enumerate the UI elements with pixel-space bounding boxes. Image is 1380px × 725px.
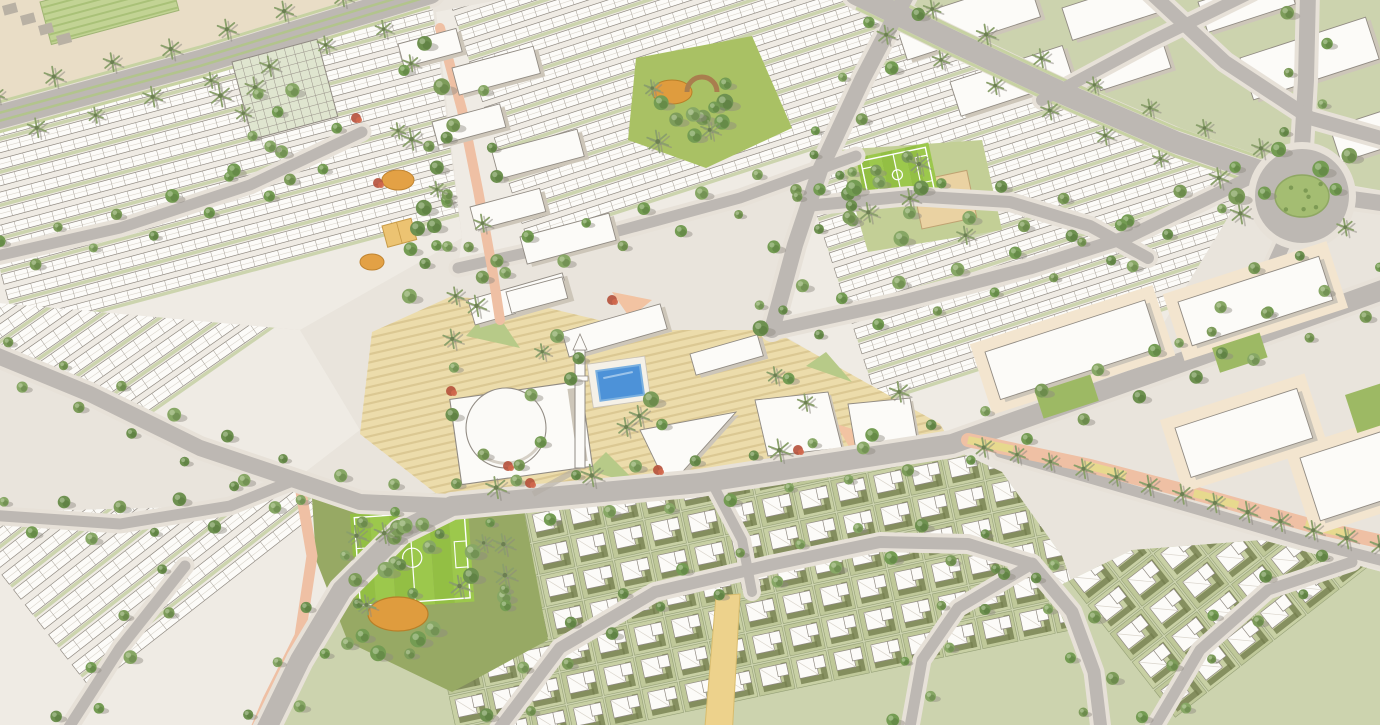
swimming-pool bbox=[587, 356, 651, 408]
masterplan-rendering bbox=[0, 0, 1380, 725]
roundabout-north-arm bbox=[1302, 0, 1308, 148]
minaret bbox=[575, 350, 585, 468]
masterplan-canvas bbox=[0, 0, 1380, 725]
playground-sandpit bbox=[368, 597, 428, 631]
playground-sand bbox=[360, 254, 384, 270]
playground-sand bbox=[382, 170, 414, 190]
roundabout-island bbox=[1275, 175, 1329, 217]
